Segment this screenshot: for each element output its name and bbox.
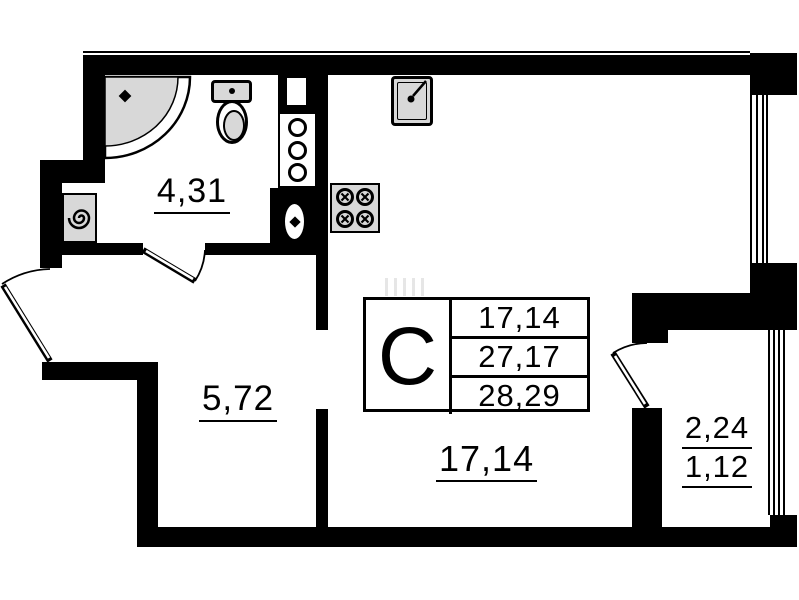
wall-top-hairline bbox=[83, 51, 750, 53]
wall-balcony-lip bbox=[632, 330, 668, 343]
kitchen-sink-inner bbox=[397, 82, 427, 120]
window-pane-line bbox=[773, 330, 775, 515]
window-pane-line bbox=[756, 95, 758, 263]
bathroom-area-label: 4,31 bbox=[148, 174, 236, 214]
bathroom-door bbox=[143, 250, 205, 281]
pipe-riser-icon bbox=[288, 141, 307, 160]
window-living-room bbox=[750, 95, 768, 263]
kitchen-sink bbox=[391, 76, 433, 126]
wall-balcony-left bbox=[632, 408, 662, 527]
washbasin-drain-icon bbox=[289, 216, 300, 227]
wall-top bbox=[83, 55, 750, 75]
living-room-area-label: 17,14 bbox=[436, 440, 536, 482]
wall-bathroom-bottom-left bbox=[62, 243, 143, 255]
living-area-cell: 17,14 bbox=[452, 300, 587, 339]
wall-left-upper bbox=[83, 55, 105, 160]
wall-right-mid-block bbox=[750, 263, 797, 330]
floor-plan: 4,31 5,72 17,14 2,24 1,12 С 17,14 27,17 … bbox=[0, 0, 799, 600]
window-pane-line bbox=[783, 330, 785, 515]
washbasin bbox=[282, 201, 307, 242]
pipe-riser-icon bbox=[288, 118, 307, 137]
entrance-door bbox=[2, 269, 50, 361]
riser-cabinet bbox=[278, 112, 317, 188]
balcony-door bbox=[613, 343, 647, 407]
window-pane-line bbox=[778, 330, 780, 515]
window-pane-line bbox=[768, 330, 770, 515]
window-pane-line bbox=[766, 95, 768, 263]
wall-balcony-top bbox=[632, 293, 750, 330]
wall-divider-lower bbox=[316, 409, 328, 527]
toilet-button-icon bbox=[229, 88, 235, 94]
unit-type-cell: С bbox=[366, 300, 452, 414]
total-area-cell: 28,29 bbox=[452, 378, 587, 414]
washing-machine bbox=[62, 193, 97, 243]
shower-tray bbox=[105, 77, 190, 158]
wall-corner-top-right bbox=[750, 53, 797, 95]
kitchen-stove bbox=[330, 183, 380, 233]
balcony-reduced-area-label: 1,12 bbox=[678, 451, 756, 488]
toilet-bowl-inner bbox=[223, 110, 245, 141]
wall-bottom bbox=[137, 527, 797, 547]
print-artifact bbox=[385, 278, 427, 296]
unit-legend-table: С 17,14 27,17 28,29 bbox=[363, 297, 590, 412]
window-balcony-glazing bbox=[768, 330, 785, 515]
apartment-area-cell: 27,17 bbox=[452, 339, 587, 378]
ventilation-shaft bbox=[285, 76, 308, 107]
pipe-riser-icon bbox=[288, 163, 307, 182]
toilet-bowl bbox=[216, 100, 248, 144]
wall-bottom-left-vertical bbox=[137, 362, 158, 547]
wall-corner-bottom-right bbox=[770, 515, 797, 547]
shower-drain-icon bbox=[119, 90, 132, 103]
window-pane-line bbox=[762, 95, 764, 263]
hallway-area-label: 5,72 bbox=[194, 381, 282, 422]
window-pane-line bbox=[750, 95, 752, 263]
balcony-area-label: 2,24 bbox=[678, 412, 756, 449]
wall-left-mid bbox=[40, 183, 62, 268]
wall-left-step bbox=[40, 160, 105, 183]
